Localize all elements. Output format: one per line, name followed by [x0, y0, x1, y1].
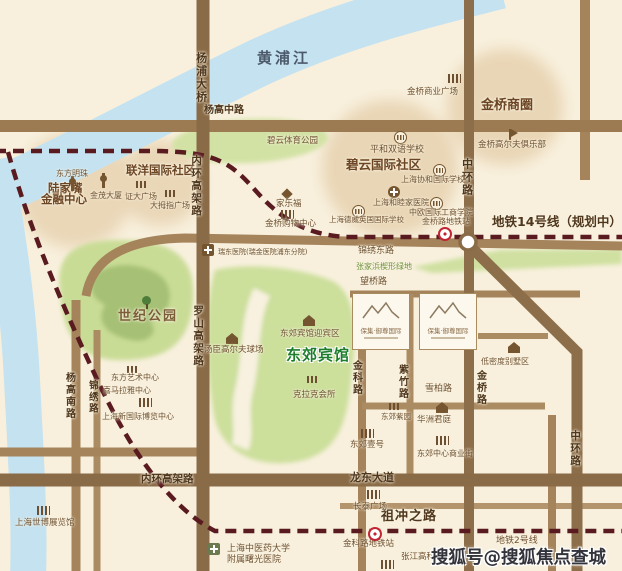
biyun-intl-community-label: 碧云国际社区 — [346, 158, 421, 172]
estate-logo-sketch — [360, 300, 402, 320]
jinke-metro-station-label: 金科路地铁站 — [343, 540, 394, 550]
concordia-school-label: 上海协和国际学校 — [401, 175, 465, 184]
united-family-hospital-label: 上海和睦家医院 — [373, 198, 429, 207]
huazhou-junting-label: 华洲君庭 — [417, 416, 451, 426]
road-label-jinxiu: 锦绣路 — [86, 380, 97, 415]
building-icon — [381, 560, 394, 569]
road-label-luoshan-elevated: 罗山高架路 — [192, 305, 204, 368]
building-icon — [127, 366, 137, 373]
expo-exhibition-label: 上海世博展览馆 — [15, 519, 75, 529]
building-icon — [281, 210, 294, 219]
expo-intl-center-label: 上海新国际博览中心 — [102, 412, 174, 421]
shuguang-hospital-label-line1: 上海中医药大学 — [227, 544, 290, 554]
estate-subtitle-line — [431, 337, 465, 339]
road-label-yangpu-bridge: 杨浦大桥 — [194, 52, 207, 104]
building-icon — [367, 490, 380, 499]
villa-area-label: 低密度别墅区 — [481, 357, 529, 366]
dongjiao-center-label: 东郊中心商业街 — [417, 449, 473, 458]
metro-station-icon — [438, 227, 452, 241]
hospital-cross-icon — [388, 186, 400, 198]
estate-box-1: 保集·御尊国际 — [352, 293, 410, 350]
estate-box-2: 保集·御尊国际 — [419, 293, 477, 350]
building-icon — [448, 74, 461, 83]
dongfang-art-center-label: 东方艺术中心 — [111, 373, 159, 382]
jinqiao-business-circle-label: 金桥商圈 — [481, 99, 533, 114]
road-label-zhonghuan-south: 中环路 — [569, 430, 581, 468]
estate-name: 保集·御尊国际 — [353, 325, 409, 335]
location-map: 保集·御尊国际 保集·御尊国际 黄浦江 世纪公园 张家浜楔形绿地 碧云体育公园 … — [0, 0, 622, 571]
building-icon — [361, 429, 374, 438]
kelake-club-label: 克拉克会所 — [293, 391, 336, 401]
estate-logo-sketch — [427, 300, 469, 320]
road-label-jinqiao: 金桥路 — [474, 370, 486, 406]
jinqiao-metro-station-label: 金桥路地铁站 — [422, 217, 470, 226]
road-label-wangqiao: 望桥路 — [360, 277, 387, 287]
ceibs-label: 中欧国际工商学院 — [409, 208, 473, 217]
school-icon — [394, 131, 407, 144]
hospital-cross-icon — [202, 244, 214, 256]
oriental-pearl-tower-icon — [71, 176, 74, 191]
golf-flag-icon — [509, 129, 511, 140]
road-label-jinxiu-east: 锦绣东路 — [358, 246, 394, 256]
building-icon — [436, 436, 449, 445]
map-geometry — [0, 0, 622, 571]
biyun-sports-park-label: 碧云体育公园 — [267, 137, 318, 147]
shuguang-hospital-label-line2: 附属曙光医院 — [227, 555, 281, 565]
dongjiao-hotel-label: 东郊宾馆 — [286, 347, 350, 364]
dulwich-school-label: 上海德威英国国际学校 — [329, 216, 404, 225]
oriental-pearl-label: 东方明珠 — [56, 169, 88, 178]
tree-icon — [142, 296, 151, 305]
metro-line-14-label: 地铁14号线（规划中） — [492, 215, 622, 229]
estate-name: 保集·御尊国际 — [420, 325, 476, 335]
house-icon — [303, 320, 315, 326]
century-park-label: 世纪公园 — [118, 310, 178, 325]
jinmao-tower-icon — [102, 173, 105, 188]
hospital-cross-icon — [208, 543, 220, 555]
building-icon — [307, 376, 317, 383]
dongjiao-ziyuan-label: 东郊紫园 — [381, 413, 411, 422]
road-label-xuebai: 雪柏路 — [425, 384, 452, 394]
thumb-plaza-label: 大拇指广场 — [150, 201, 190, 210]
house-icon — [436, 407, 448, 413]
jinqiao-golf-label: 金桥高尔夫俱乐部 — [478, 141, 546, 151]
road-label-jinke: 金科路 — [350, 360, 362, 396]
estate-subtitle-line — [364, 337, 398, 339]
road-label-yanggao-middle: 杨高中路 — [204, 105, 244, 117]
house-icon — [508, 347, 520, 353]
metro-interchange-circle — [460, 234, 476, 250]
building-icon — [136, 181, 146, 188]
carrefour-label: 家乐福 — [276, 200, 302, 210]
ruidong-hospital-label: 瑞东医院(瑞金医院浦东分院) — [218, 248, 307, 256]
jinqiao-biz-plaza-label: 金桥商业广场 — [407, 88, 458, 98]
building-icon — [389, 403, 399, 410]
pinghe-school-label: 平和双语学校 — [370, 145, 424, 155]
building-icon — [139, 398, 152, 407]
dongjiao-reception-label: 东郊宾馆迎宾区 — [280, 330, 340, 340]
road-label-inner-ring-horizontal: 内环高架路 — [141, 473, 194, 485]
road-label-longdong-avenue: 龙东大道 — [350, 472, 394, 485]
building-icon — [37, 506, 50, 515]
dongjiao-one-label: 东郊壹号 — [350, 441, 384, 451]
tangchen-golf-label: 汤臣高尔夫球场 — [204, 346, 264, 356]
road-label-inner-ring-vertical: 内环高架路 — [190, 155, 202, 218]
metro-station-icon — [368, 527, 382, 541]
zhengda-plaza-label: 证大广场 — [125, 192, 157, 201]
jinmao-tower-label: 金茂大厦 — [90, 191, 122, 200]
lujiazui-label-line2: 金融中心 — [41, 193, 87, 206]
jinqiao-mall-label: 金桥购物中心 — [265, 220, 316, 230]
huangpu-river-label: 黄浦江 — [257, 50, 311, 67]
building-icon — [165, 190, 175, 197]
house-icon — [226, 338, 238, 344]
zhangjiabang-green-label: 张家浜楔形绿地 — [356, 262, 412, 271]
road-label-yanggao-south: 杨高南路 — [63, 372, 75, 420]
road-label-zizhu: 紫竹路 — [396, 364, 408, 400]
himalaya-center-label: 喜马拉雅中心 — [103, 386, 151, 395]
road-label-zuchongzhi: 祖冲之路 — [381, 510, 437, 525]
sohu-watermark: 搜狐号@搜狐焦点查城站 — [431, 544, 622, 571]
lianyang-intl-community-label: 联洋国际社区 — [126, 164, 195, 177]
changtai-plaza-label: 长泰广场 — [353, 503, 387, 513]
